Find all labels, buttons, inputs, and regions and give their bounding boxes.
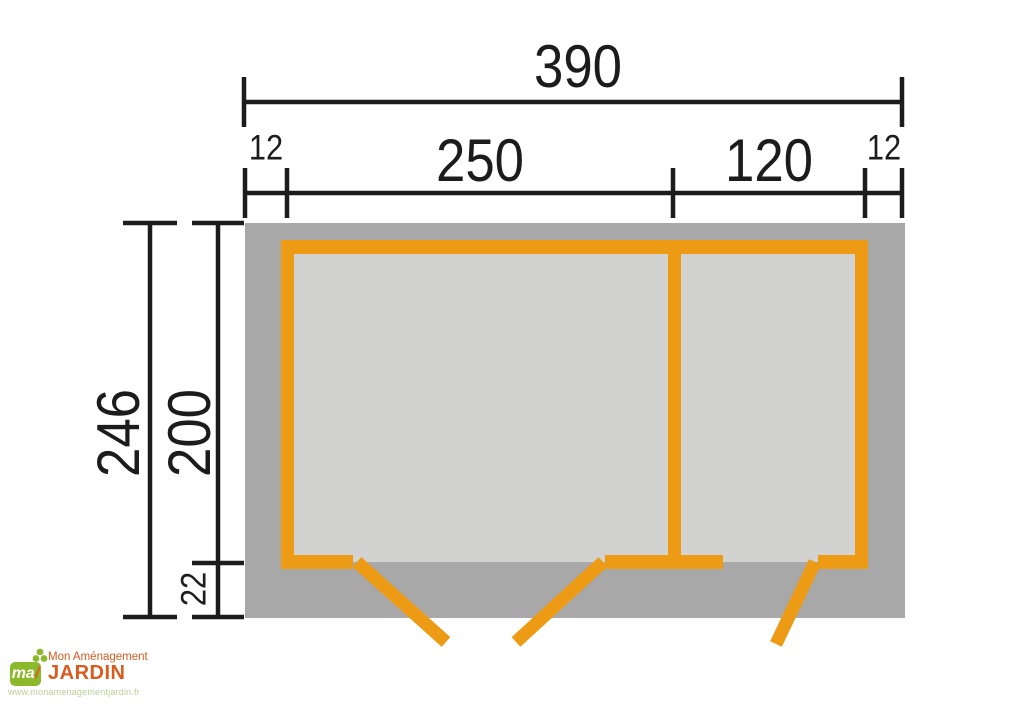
room-2-door-threshold bbox=[723, 562, 818, 569]
room-1-floor bbox=[294, 254, 668, 555]
brand-logo-mark-text: ma bbox=[12, 665, 35, 682]
brand-logo-mark: ma/ bbox=[10, 662, 41, 686]
dim-label-total-depth: 246 bbox=[89, 389, 149, 477]
brand-name-main: JARDIN bbox=[48, 662, 125, 685]
brand-logo-mark-accent: / bbox=[35, 665, 39, 682]
room-2-floor bbox=[681, 254, 855, 555]
brand-logo: ma/ Mon Aménagement JARDIN www.monamenag… bbox=[8, 645, 158, 700]
dim-label-total-width: 390 bbox=[534, 37, 622, 97]
room-1-door-opening bbox=[353, 555, 605, 562]
dim-label-left-overhang: 12 bbox=[249, 131, 283, 166]
dim-label-inner-depth: 200 bbox=[160, 389, 220, 477]
dim-label-room2-width: 120 bbox=[725, 131, 813, 191]
floor-plan-drawing bbox=[0, 0, 1024, 705]
dim-label-right-overhang: 12 bbox=[867, 131, 901, 166]
floor-plan-image: 390 12 250 120 12 246 200 22 ma/ Mon Amé… bbox=[0, 0, 1024, 705]
dim-label-room1-width: 250 bbox=[436, 131, 524, 191]
dim-label-base-offset: 22 bbox=[177, 572, 212, 606]
clover-icon bbox=[32, 648, 48, 663]
brand-website: www.monamenagementjardin.fr bbox=[8, 687, 140, 697]
room-1-door-threshold bbox=[353, 562, 605, 569]
room-2-door-opening bbox=[723, 555, 818, 562]
